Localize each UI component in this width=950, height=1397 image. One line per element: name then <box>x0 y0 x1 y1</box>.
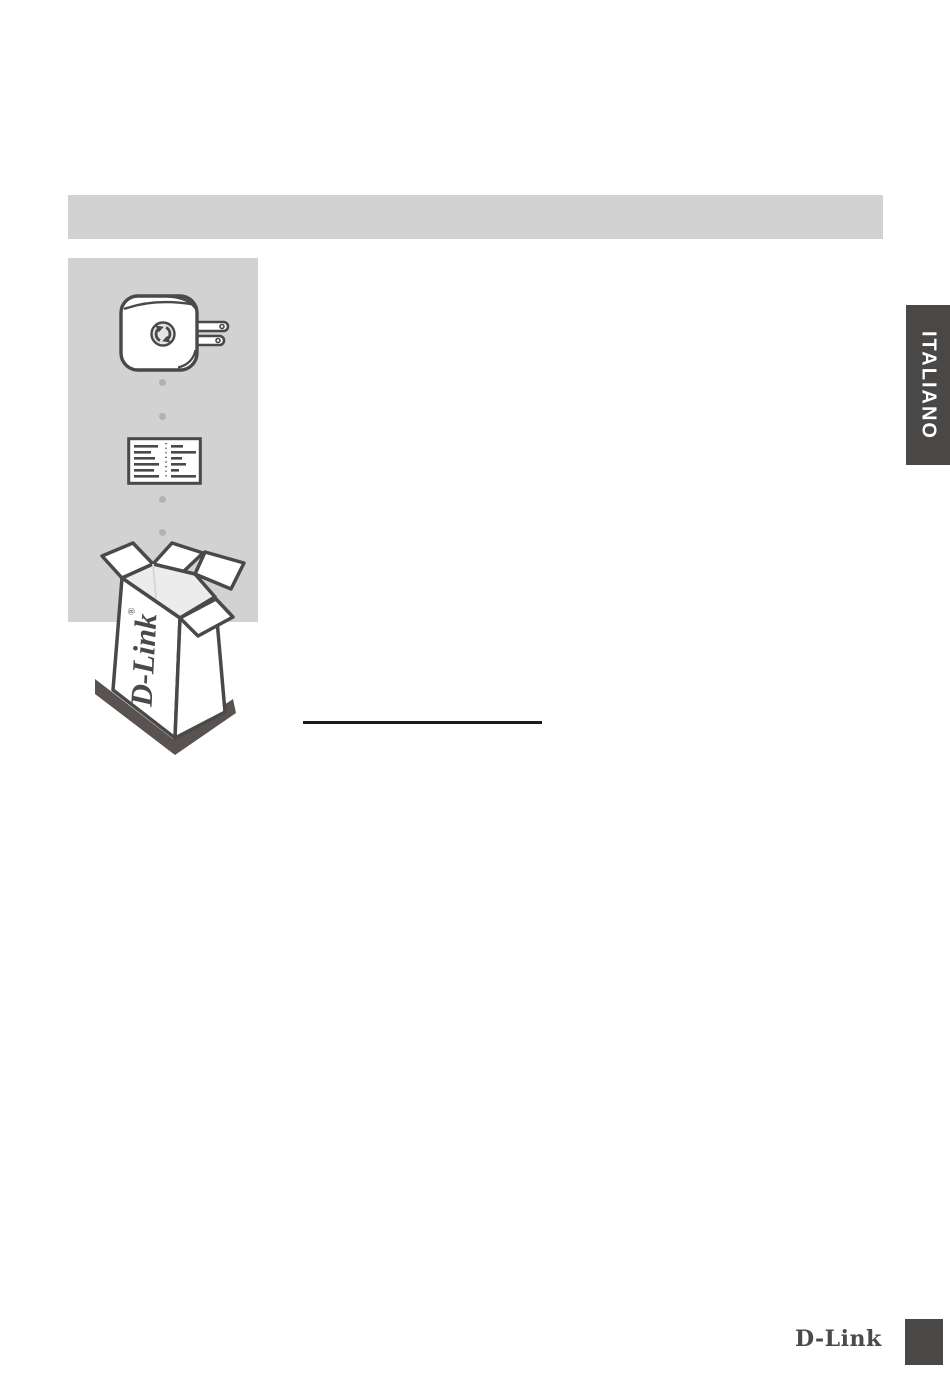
extender-device-illustration <box>118 292 232 374</box>
section-header-bar <box>68 195 883 239</box>
ellipsis-dot <box>159 379 166 386</box>
language-tab-italiano: ITALIANO <box>906 305 950 465</box>
language-tab-label: ITALIANO <box>917 331 940 440</box>
registered-mark: ® <box>126 607 137 616</box>
product-box-illustration: D-Link ® <box>95 527 250 762</box>
ellipsis-dot <box>159 496 166 503</box>
box-brand-label: D-Link ® <box>122 607 164 708</box>
link-underline[interactable] <box>303 721 542 724</box>
footer-corner-square <box>905 1319 943 1365</box>
document-page: D-Link ® ITALIANO D-Link <box>0 0 950 1397</box>
power-prongs-icon <box>194 322 228 345</box>
svg-text:D-Link: D-Link <box>124 612 164 708</box>
configuration-card-illustration <box>127 437 202 485</box>
ellipsis-dot <box>159 413 166 420</box>
dlink-logo: D-Link <box>795 1326 882 1352</box>
wps-icon <box>152 323 175 346</box>
